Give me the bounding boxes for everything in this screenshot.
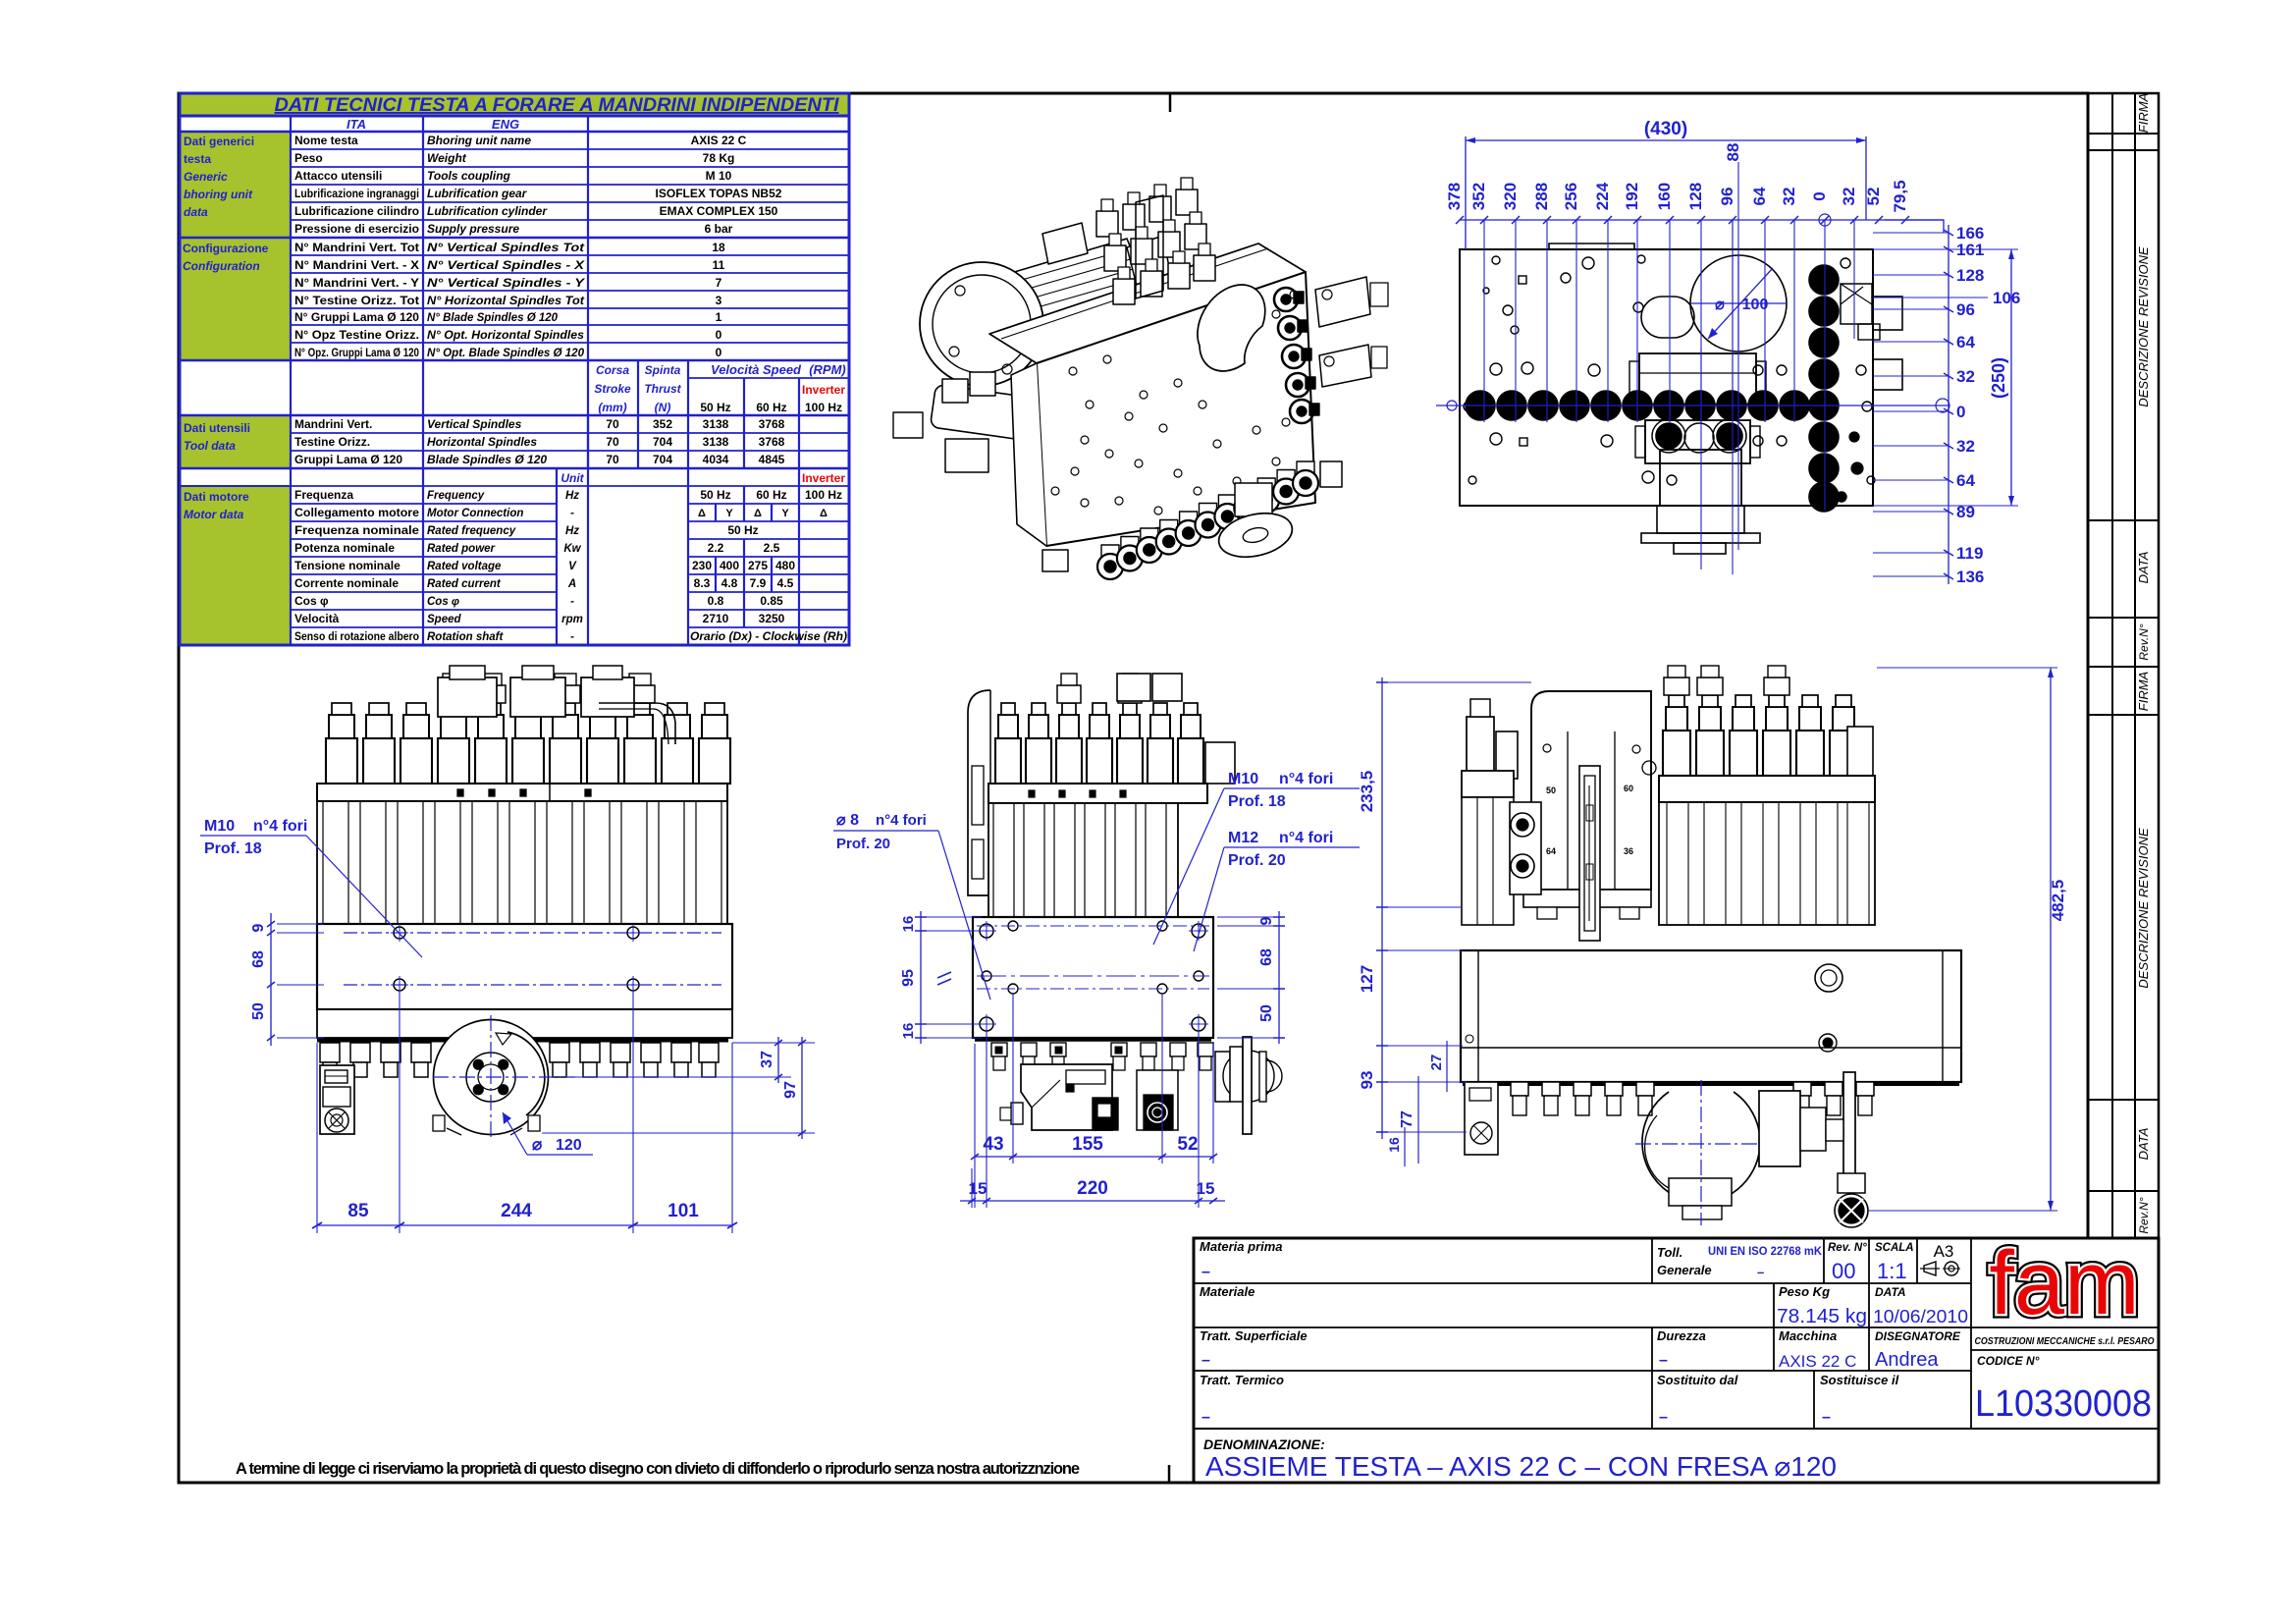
svg-text:Cos φ: Cos φ xyxy=(294,594,329,608)
svg-text:0: 0 xyxy=(716,346,722,359)
svg-text:N° Vertical Spindles Tot: N° Vertical Spindles Tot xyxy=(427,243,585,254)
svg-text:6 bar: 6 bar xyxy=(705,222,733,236)
svg-text:4.8: 4.8 xyxy=(721,576,738,590)
svg-text:106: 106 xyxy=(1993,289,2020,307)
svg-text:7: 7 xyxy=(716,276,722,290)
svg-text:480: 480 xyxy=(775,559,795,572)
svg-text:3768: 3768 xyxy=(759,417,785,431)
svg-text:Dati generici: Dati generici xyxy=(184,135,254,148)
svg-text:Rated power: Rated power xyxy=(427,543,496,555)
svg-text:352: 352 xyxy=(1469,183,1488,210)
svg-text:bhoring unit: bhoring unit xyxy=(184,188,253,201)
svg-text:–: – xyxy=(1822,1409,1831,1426)
svg-text:482,5: 482,5 xyxy=(2049,880,2067,922)
svg-text:Δ: Δ xyxy=(820,508,828,519)
svg-text:-: - xyxy=(570,508,574,519)
svg-text:Prof. 18: Prof. 18 xyxy=(204,840,262,857)
svg-text:DATA: DATA xyxy=(2136,552,2151,584)
svg-text:97: 97 xyxy=(782,1081,799,1099)
svg-text:15: 15 xyxy=(1197,1179,1215,1198)
svg-text:Corsa: Corsa xyxy=(596,363,629,377)
svg-text:119: 119 xyxy=(1956,544,1983,563)
svg-text:Rev. N°: Rev. N° xyxy=(1828,1242,1867,1254)
svg-text:Prof. 20: Prof. 20 xyxy=(836,836,890,852)
svg-text:78 Kg: 78 Kg xyxy=(703,151,735,165)
svg-text:85: 85 xyxy=(347,1201,369,1221)
svg-text:Unit: Unit xyxy=(561,471,584,485)
svg-text:(430): (430) xyxy=(1644,119,1687,139)
svg-text:N° Mandrini Vert. Tot: N° Mandrini Vert. Tot xyxy=(294,243,419,254)
svg-text:96: 96 xyxy=(1956,300,1975,319)
svg-text:378: 378 xyxy=(1445,183,1464,210)
svg-text:4845: 4845 xyxy=(759,453,785,466)
svg-text:CODICE N°: CODICE N° xyxy=(1977,1354,2040,1368)
svg-text:2710: 2710 xyxy=(703,612,729,625)
svg-text:18: 18 xyxy=(712,241,725,254)
svg-text:16: 16 xyxy=(900,916,917,933)
svg-text:68: 68 xyxy=(1258,948,1275,966)
svg-text:Kw: Kw xyxy=(563,543,581,555)
svg-text:64: 64 xyxy=(1956,471,1975,490)
svg-text:Materia prima: Materia prima xyxy=(1200,1239,1283,1254)
svg-text:Velocità Speed: Velocità Speed xyxy=(711,362,802,377)
svg-text:Δ: Δ xyxy=(754,508,762,519)
svg-text:Frequenza: Frequenza xyxy=(294,488,353,502)
svg-text:Sostituisce il: Sostituisce il xyxy=(1820,1373,1899,1387)
svg-text:32: 32 xyxy=(1840,188,1858,206)
svg-text:244: 244 xyxy=(501,1201,532,1221)
svg-text:36: 36 xyxy=(1624,846,1633,856)
svg-text:Thrust: Thrust xyxy=(644,382,681,396)
svg-text:64: 64 xyxy=(1750,187,1769,205)
svg-text:136: 136 xyxy=(1956,568,1984,586)
svg-text:-: - xyxy=(570,596,574,608)
svg-text:Rated current: Rated current xyxy=(427,578,502,590)
svg-text:100: 100 xyxy=(1742,297,1769,313)
svg-text:100 Hz: 100 Hz xyxy=(805,488,842,502)
svg-text:A termine di legge ci riservia: A termine di legge ci riserviamo la prop… xyxy=(236,1460,1080,1478)
svg-text:192: 192 xyxy=(1623,183,1641,210)
svg-text:Lubrificazione cilindro: Lubrificazione cilindro xyxy=(294,204,419,218)
svg-text:Tensione nominale: Tensione nominale xyxy=(294,559,400,572)
svg-text:A3: A3 xyxy=(1934,1242,1954,1261)
svg-text:(250): (250) xyxy=(1989,357,2008,399)
svg-text:FIRMA: FIRMA xyxy=(2136,672,2151,711)
svg-text:120: 120 xyxy=(556,1137,582,1154)
svg-text:ITA: ITA xyxy=(347,117,366,132)
svg-text:2.5: 2.5 xyxy=(764,541,780,555)
svg-text:DISEGNATORE: DISEGNATORE xyxy=(1875,1329,1961,1343)
svg-text:79,5: 79,5 xyxy=(1891,180,1909,212)
svg-text:Nome testa: Nome testa xyxy=(294,134,358,147)
svg-text:Motor Connection: Motor Connection xyxy=(427,508,523,519)
svg-text:64: 64 xyxy=(1956,333,1975,352)
svg-text:N° Horizontal Spindles Tot: N° Horizontal Spindles Tot xyxy=(427,296,585,307)
svg-text:N° Opz Testine Orizz.: N° Opz Testine Orizz. xyxy=(294,330,419,342)
svg-text:(N): (N) xyxy=(655,401,671,414)
svg-text:N° Vertical Spindles - X: N° Vertical Spindles - X xyxy=(427,260,586,272)
svg-text:0.85: 0.85 xyxy=(760,594,783,608)
svg-text:Lubrification gear: Lubrification gear xyxy=(427,187,528,200)
svg-text:DATA: DATA xyxy=(2136,1128,2151,1161)
svg-text:N° Vertical Spindles - Y: N° Vertical Spindles - Y xyxy=(427,278,586,290)
svg-text:Macchina: Macchina xyxy=(1779,1328,1837,1343)
svg-text:Testine Orizz.: Testine Orizz. xyxy=(294,435,370,449)
svg-text:Y: Y xyxy=(725,508,733,519)
svg-text:68: 68 xyxy=(250,950,267,968)
svg-text:Spinta: Spinta xyxy=(645,363,681,377)
svg-text:Tratt. Termico: Tratt. Termico xyxy=(1200,1373,1284,1387)
svg-text:Attacco utensili: Attacco utensili xyxy=(294,169,382,183)
svg-text:3138: 3138 xyxy=(703,417,729,431)
svg-text:60: 60 xyxy=(1624,784,1633,793)
svg-text:00: 00 xyxy=(1832,1259,1855,1283)
svg-text:Stroke: Stroke xyxy=(594,382,631,396)
svg-text:Vertical Spindles: Vertical Spindles xyxy=(427,417,522,431)
svg-text:160: 160 xyxy=(1655,183,1674,210)
svg-text:Frequency: Frequency xyxy=(427,490,485,502)
svg-text:DATI TECNICI TESTA A FORARE A: DATI TECNICI TESTA A FORARE A MANDRINI I… xyxy=(275,95,840,116)
svg-text:N° Gruppi Lama Ø 120: N° Gruppi Lama Ø 120 xyxy=(294,312,419,324)
svg-text:fam: fam xyxy=(1989,1233,2139,1333)
svg-text:101: 101 xyxy=(667,1201,699,1221)
svg-text:256: 256 xyxy=(1562,183,1580,210)
svg-text:Cos φ: Cos φ xyxy=(427,596,459,608)
svg-text:Dati utensili: Dati utensili xyxy=(184,421,250,435)
svg-text:275: 275 xyxy=(748,559,768,572)
svg-text:52: 52 xyxy=(1864,188,1883,206)
svg-text:Speed: Speed xyxy=(427,614,461,625)
svg-text:-: - xyxy=(570,631,574,643)
svg-text:UNI EN ISO 22768 mK: UNI EN ISO 22768 mK xyxy=(1708,1244,1822,1258)
svg-text:704: 704 xyxy=(653,453,672,466)
svg-text:4034: 4034 xyxy=(703,453,729,466)
svg-text:Rated frequency: Rated frequency xyxy=(427,525,516,537)
svg-text:Blade Spindles Ø 120: Blade Spindles Ø 120 xyxy=(427,453,547,466)
svg-text:50 Hz: 50 Hz xyxy=(727,523,758,537)
svg-text:AXIS 22 C: AXIS 22 C xyxy=(1779,1352,1856,1371)
svg-text:Hz: Hz xyxy=(565,490,579,502)
svg-text:9: 9 xyxy=(1258,916,1275,925)
svg-text:0.8: 0.8 xyxy=(708,594,724,608)
svg-text:N° Opz. Gruppi Lama Ø 120: N° Opz. Gruppi Lama Ø 120 xyxy=(294,348,419,359)
svg-text:0: 0 xyxy=(716,328,722,342)
svg-text:Senso di rotazione albero: Senso di rotazione albero xyxy=(294,629,419,643)
svg-text:52: 52 xyxy=(1177,1134,1198,1155)
svg-text:11: 11 xyxy=(713,258,725,272)
svg-text:78.145 kg: 78.145 kg xyxy=(1777,1306,1867,1327)
svg-text:1:1: 1:1 xyxy=(1877,1259,1907,1283)
svg-text:AXIS 22 C: AXIS 22 C xyxy=(691,134,747,147)
svg-text:⌀: ⌀ xyxy=(532,1135,543,1154)
svg-text:Mandrini Vert.: Mandrini Vert. xyxy=(294,417,372,431)
svg-text:9: 9 xyxy=(250,923,267,932)
svg-text:–: – xyxy=(1659,1352,1668,1369)
svg-text:Collegamento motore: Collegamento motore xyxy=(294,506,419,519)
svg-text:32: 32 xyxy=(1780,188,1798,206)
svg-text:A: A xyxy=(567,578,576,590)
svg-text:64: 64 xyxy=(1546,846,1556,856)
svg-text:0: 0 xyxy=(1810,191,1829,200)
svg-text:N° Opt. Horizontal Spindles: N° Opt. Horizontal Spindles xyxy=(427,330,584,342)
svg-text:Horizontal Spindles: Horizontal Spindles xyxy=(427,435,537,449)
svg-text:Δ: Δ xyxy=(698,508,706,519)
svg-text:10/06/2010: 10/06/2010 xyxy=(1873,1307,1968,1326)
svg-text:M 10: M 10 xyxy=(706,169,732,183)
svg-text:SCALA: SCALA xyxy=(1875,1242,1914,1254)
svg-text:Pressione di esercizio: Pressione di esercizio xyxy=(294,222,419,236)
svg-text:3768: 3768 xyxy=(759,435,785,449)
svg-text:230: 230 xyxy=(692,559,712,572)
svg-text:Motor data: Motor data xyxy=(184,508,244,521)
svg-text:32: 32 xyxy=(1956,367,1975,386)
svg-text:2.2: 2.2 xyxy=(708,541,724,555)
svg-text:3: 3 xyxy=(716,294,722,307)
svg-text:DESCRIZIONE REVISIONE: DESCRIZIONE REVISIONE xyxy=(2136,828,2151,989)
svg-text:Orario (Dx) - Clockwise (Rh): Orario (Dx) - Clockwise (Rh) xyxy=(690,629,847,643)
svg-text:ISOFLEX TOPAS NB52: ISOFLEX TOPAS NB52 xyxy=(656,187,782,200)
svg-text:–: – xyxy=(1201,1352,1210,1369)
svg-text:Gruppi Lama Ø 120: Gruppi Lama Ø 120 xyxy=(294,453,402,466)
svg-text:Sostituito dal: Sostituito dal xyxy=(1657,1373,1738,1387)
svg-text:15: 15 xyxy=(969,1179,988,1198)
svg-text:(RPM): (RPM) xyxy=(809,362,846,377)
svg-text:32: 32 xyxy=(1956,437,1975,456)
svg-text:Generic: Generic xyxy=(184,170,228,184)
svg-text:Frequenza nominale: Frequenza nominale xyxy=(294,523,419,537)
svg-text:233,5: 233,5 xyxy=(1358,771,1376,813)
svg-text:M12: M12 xyxy=(1228,830,1258,846)
svg-text:–: – xyxy=(1201,1264,1210,1280)
svg-text:Rotation shaft: Rotation shaft xyxy=(427,631,504,643)
svg-text:ASSIEME TESTA – AXIS 22 C – CO: ASSIEME TESTA – AXIS 22 C – CON FRESA ⌀1… xyxy=(1205,1451,1837,1482)
svg-text:7.9: 7.9 xyxy=(750,576,767,590)
svg-text:Rev.N°: Rev.N° xyxy=(2137,623,2151,660)
svg-text:Configurazione: Configurazione xyxy=(183,242,269,255)
svg-text:V: V xyxy=(568,561,577,572)
svg-text:70: 70 xyxy=(606,417,619,431)
svg-text:Generale: Generale xyxy=(1657,1263,1712,1277)
svg-text:Peso Kg: Peso Kg xyxy=(1779,1284,1830,1299)
svg-text:Hz: Hz xyxy=(565,525,579,537)
svg-text:Bhoring unit name: Bhoring unit name xyxy=(427,134,531,147)
svg-text:Durezza: Durezza xyxy=(1657,1328,1706,1343)
svg-text:50: 50 xyxy=(250,1002,267,1020)
svg-text:Lubrification cylinder: Lubrification cylinder xyxy=(427,204,548,218)
svg-text:77: 77 xyxy=(1399,1110,1415,1128)
svg-text:224: 224 xyxy=(1593,182,1612,210)
svg-text:93: 93 xyxy=(1358,1071,1376,1090)
svg-text:Andrea: Andrea xyxy=(1875,1349,1939,1371)
svg-text:88: 88 xyxy=(1724,143,1742,162)
svg-text:Y: Y xyxy=(781,508,789,519)
svg-text:DATA: DATA xyxy=(1875,1285,1906,1299)
svg-text:N° Mandrini Vert. - Y: N° Mandrini Vert. - Y xyxy=(294,278,419,290)
svg-text:288: 288 xyxy=(1532,183,1551,210)
svg-text:n°4 fori: n°4 fori xyxy=(1279,830,1333,846)
svg-text:⌀ 8: ⌀ 8 xyxy=(836,812,859,829)
svg-text:Supply pressure: Supply pressure xyxy=(427,222,519,236)
svg-text:50 Hz: 50 Hz xyxy=(700,401,730,414)
svg-text:50: 50 xyxy=(1546,785,1556,795)
svg-text:N° Testine Orizz. Tot: N° Testine Orizz. Tot xyxy=(294,296,419,307)
svg-text:128: 128 xyxy=(1686,183,1705,210)
svg-text:50 Hz: 50 Hz xyxy=(700,488,730,502)
svg-text:L10330008: L10330008 xyxy=(1975,1383,2152,1425)
svg-text:155: 155 xyxy=(1072,1134,1103,1155)
svg-text:n°4 fori: n°4 fori xyxy=(1279,771,1333,787)
svg-text:Tools coupling: Tools coupling xyxy=(427,169,511,183)
svg-text:37: 37 xyxy=(759,1051,775,1068)
svg-text:3138: 3138 xyxy=(703,435,729,449)
svg-text:70: 70 xyxy=(606,435,619,449)
svg-text:100 Hz: 100 Hz xyxy=(805,401,842,414)
svg-text:Materiale: Materiale xyxy=(1200,1284,1255,1299)
svg-text:Potenza nominale: Potenza nominale xyxy=(294,541,395,555)
svg-text:Rev.N°: Rev.N° xyxy=(2137,1197,2151,1233)
svg-text:FIRMA: FIRMA xyxy=(2136,93,2151,133)
svg-text:Configuration: Configuration xyxy=(183,259,260,273)
svg-text:Toll.: Toll. xyxy=(1657,1245,1682,1260)
svg-text:50: 50 xyxy=(1258,1004,1275,1022)
svg-text:704: 704 xyxy=(653,435,672,449)
svg-text:COSTRUZIONI MECCANICHE s.r.l.: COSTRUZIONI MECCANICHE s.r.l. PESARO xyxy=(1975,1336,2155,1347)
svg-text:N° Mandrini Vert. - X: N° Mandrini Vert. - X xyxy=(294,260,419,272)
svg-text:127: 127 xyxy=(1358,965,1376,993)
svg-text:n°4 fori: n°4 fori xyxy=(876,812,927,829)
svg-text:352: 352 xyxy=(653,417,672,431)
svg-text:220: 220 xyxy=(1077,1178,1108,1199)
svg-text:Prof. 18: Prof. 18 xyxy=(1228,793,1286,810)
svg-text:data: data xyxy=(184,205,208,219)
svg-text:27: 27 xyxy=(1428,1055,1445,1071)
svg-text:128: 128 xyxy=(1956,266,1984,285)
svg-text:4.5: 4.5 xyxy=(777,576,794,590)
svg-text:testa: testa xyxy=(184,152,211,166)
svg-text:Prof. 20: Prof. 20 xyxy=(1228,852,1286,869)
svg-text:Lubrificazione ingranaggi: Lubrificazione ingranaggi xyxy=(294,187,419,200)
svg-text:–: – xyxy=(1757,1265,1764,1279)
svg-text:70: 70 xyxy=(606,453,619,466)
svg-text:8.3: 8.3 xyxy=(694,576,711,590)
svg-text:DENOMINAZIONE:: DENOMINAZIONE: xyxy=(1203,1436,1325,1452)
svg-text:rpm: rpm xyxy=(561,614,583,625)
svg-text:60 Hz: 60 Hz xyxy=(756,488,786,502)
svg-text:–: – xyxy=(1659,1409,1668,1426)
svg-text:M10: M10 xyxy=(1228,771,1258,787)
svg-text:Corrente nominale: Corrente nominale xyxy=(294,576,399,590)
svg-text:Peso: Peso xyxy=(294,151,323,165)
svg-text:96: 96 xyxy=(1718,188,1736,206)
svg-text:ENG: ENG xyxy=(492,117,519,132)
svg-text:Inverter: Inverter xyxy=(802,471,845,485)
svg-text:3250: 3250 xyxy=(759,612,785,625)
svg-text:1: 1 xyxy=(716,310,722,324)
svg-text:Inverter: Inverter xyxy=(802,383,845,397)
svg-text:N° Blade Spindles Ø 120: N° Blade Spindles Ø 120 xyxy=(427,312,559,324)
svg-text:400: 400 xyxy=(720,559,739,572)
svg-text:⌀: ⌀ xyxy=(1715,297,1725,313)
svg-text:M10: M10 xyxy=(204,818,235,835)
svg-text:Velocità: Velocità xyxy=(294,612,340,625)
svg-text:Weight: Weight xyxy=(427,151,467,165)
svg-text:95: 95 xyxy=(900,969,917,987)
svg-text:DESCRIZIONE REVISIONE: DESCRIZIONE REVISIONE xyxy=(2136,246,2151,407)
svg-text:n°4 fori: n°4 fori xyxy=(253,818,307,835)
svg-text:(mm): (mm) xyxy=(598,401,626,414)
svg-text:16: 16 xyxy=(900,1023,917,1040)
svg-text:320: 320 xyxy=(1501,183,1520,210)
svg-text:0: 0 xyxy=(1956,403,1965,421)
svg-text:Dati motore: Dati motore xyxy=(184,490,249,504)
svg-text:N° Opt. Blade Spindles Ø 120: N° Opt. Blade Spindles Ø 120 xyxy=(427,348,585,359)
svg-text:Tool data: Tool data xyxy=(184,439,236,453)
svg-text:16: 16 xyxy=(1386,1137,1402,1153)
svg-text:Rated voltage: Rated voltage xyxy=(427,561,502,572)
svg-text:–: – xyxy=(1201,1409,1210,1426)
svg-text:Tratt. Superficiale: Tratt. Superficiale xyxy=(1200,1328,1308,1343)
svg-text:EMAX COMPLEX 150: EMAX COMPLEX 150 xyxy=(660,204,778,218)
svg-text:60 Hz: 60 Hz xyxy=(756,401,786,414)
